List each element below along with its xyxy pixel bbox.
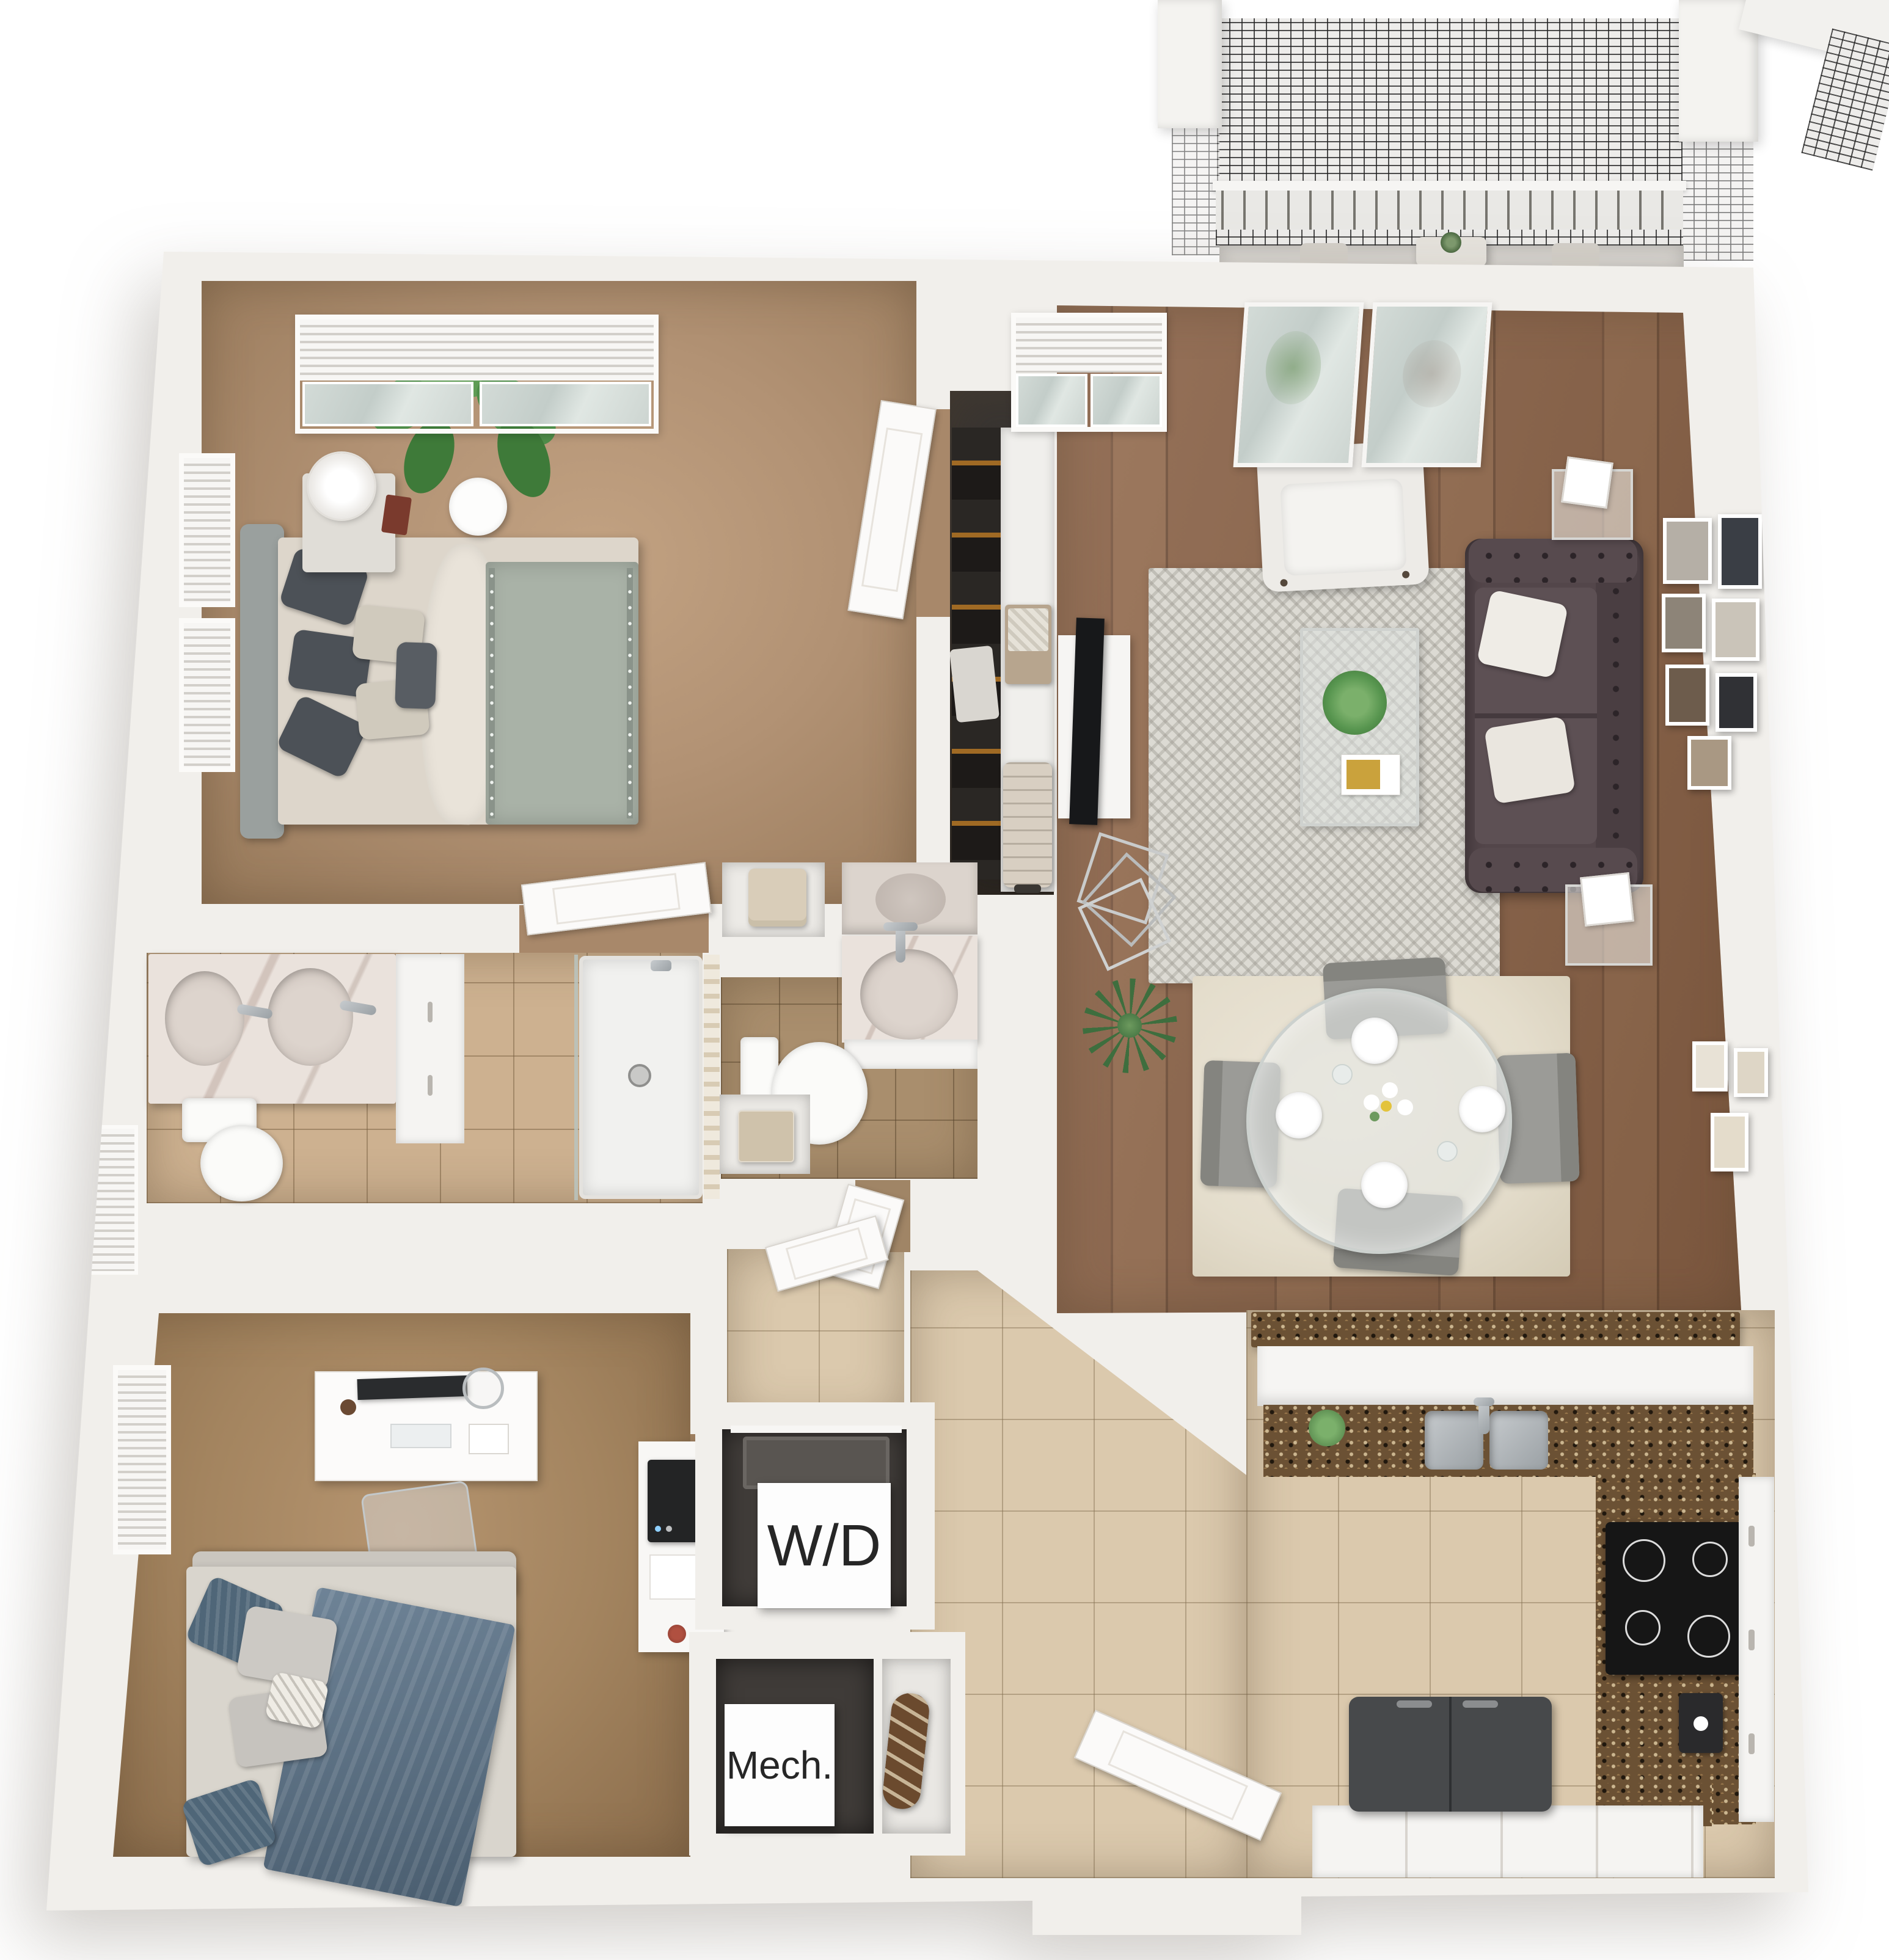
closet-shelf-lip xyxy=(731,1426,902,1433)
kitchen-sink-basin xyxy=(1489,1411,1548,1470)
printer-button xyxy=(666,1526,672,1532)
gallery-frame xyxy=(1663,518,1712,584)
coffee-maker xyxy=(1679,1693,1723,1753)
vanity2-cabinet xyxy=(844,1040,977,1069)
vanity-sink xyxy=(860,949,958,1040)
counter-plant xyxy=(1309,1410,1345,1446)
double-vanity xyxy=(148,954,396,1104)
gallery-frame xyxy=(1662,594,1706,652)
plant-pot xyxy=(449,478,507,536)
kitchen-faucet xyxy=(1478,1402,1489,1434)
cube-lamp xyxy=(1580,872,1634,927)
folded-towels xyxy=(748,869,806,927)
bedroom1-window-top xyxy=(295,315,659,434)
window-blinds xyxy=(1016,318,1162,373)
mirror-sink-reflection xyxy=(875,873,946,925)
window-pane xyxy=(1091,374,1162,427)
shower-curtain xyxy=(704,955,720,1199)
gallery-frame xyxy=(1687,736,1731,790)
drinking-glass xyxy=(0,1014,21,1035)
spiky-plant xyxy=(1083,978,1177,1073)
place-setting-plate xyxy=(1351,1018,1398,1064)
cabinet-handle xyxy=(428,1075,433,1096)
toilet-bowl xyxy=(200,1125,283,1201)
centerpiece-flowers xyxy=(1364,1082,1419,1128)
kitchen-faucet-head xyxy=(1474,1397,1494,1406)
gallery-frame xyxy=(1715,673,1757,732)
place-setting-plate xyxy=(1361,1162,1408,1208)
magazine xyxy=(1341,754,1400,795)
bathroom1-window xyxy=(84,1125,138,1275)
sliding-door-pane xyxy=(1233,302,1364,467)
gallery-frame xyxy=(1718,514,1762,589)
shower-drain xyxy=(628,1064,651,1087)
bed1-blanket xyxy=(486,562,638,825)
folded-cloth xyxy=(1008,608,1048,651)
chair-leg xyxy=(1280,579,1288,587)
fridge-door-split xyxy=(1449,1697,1452,1812)
sliding-door-pane xyxy=(1362,302,1493,467)
suitcase xyxy=(1003,762,1052,887)
desk xyxy=(315,1371,538,1481)
spiky-plant-center xyxy=(1117,1013,1142,1038)
drinking-glass xyxy=(1332,1064,1353,1085)
storage-box xyxy=(738,1110,794,1162)
peninsula-granite-back xyxy=(1251,1312,1740,1347)
glass-plant-reflection xyxy=(1263,331,1323,404)
magazine-art xyxy=(1346,760,1380,789)
kitchen-cabinets-right xyxy=(1739,1477,1774,1822)
kitchen-cabinets-bottom xyxy=(1312,1805,1703,1878)
keyboard xyxy=(390,1424,451,1448)
sofa-pillow xyxy=(1484,716,1576,804)
vanity2-counter xyxy=(842,936,977,1043)
cabinet-handle xyxy=(1748,1630,1755,1650)
bed1-blanket-stud-band xyxy=(489,568,495,818)
fridge-handle xyxy=(1463,1700,1498,1708)
drinking-glass xyxy=(1437,1141,1458,1162)
washer-dryer-machine-top xyxy=(743,1437,890,1489)
vanity-sink xyxy=(165,971,244,1066)
bed1-blanket-stud-band xyxy=(627,568,633,818)
range-stove xyxy=(1606,1522,1757,1675)
flower xyxy=(1397,1099,1413,1115)
wire-decor-stand xyxy=(1080,817,1172,958)
vanity-cabinet xyxy=(396,954,464,1143)
coffee-mug xyxy=(340,1399,356,1415)
burner xyxy=(1687,1615,1730,1658)
shower-head xyxy=(651,960,671,971)
monitor xyxy=(357,1375,467,1400)
coffee-table-plant xyxy=(1323,671,1387,735)
window-pane xyxy=(302,382,473,426)
fridge-handle xyxy=(1397,1700,1432,1708)
dining-wall-frame xyxy=(1692,1041,1728,1091)
gallery-frame xyxy=(1712,599,1759,661)
burner xyxy=(1692,1542,1728,1577)
shower-glass-panel xyxy=(574,955,578,1200)
sofa-pillow xyxy=(1477,589,1569,679)
flower xyxy=(1382,1082,1398,1098)
sofa-back-tufted xyxy=(1596,550,1640,880)
small-cactus xyxy=(668,1625,686,1643)
desk-lamp xyxy=(462,1368,504,1409)
notebook xyxy=(469,1424,509,1454)
bedroom2-window xyxy=(113,1365,171,1554)
bedroom1-window-left xyxy=(179,453,235,607)
sofa xyxy=(1465,539,1643,893)
glass-chair-reflection xyxy=(1400,340,1463,407)
burner xyxy=(1623,1539,1665,1582)
faucet-handle-bar xyxy=(883,922,918,931)
cabinet-handle xyxy=(1748,1733,1755,1754)
apartment-walls: W/D Mech. xyxy=(0,0,1889,1960)
mechanical-label: Mech. xyxy=(726,1743,833,1788)
apartment-shell-shadow: W/D Mech. xyxy=(0,0,1889,1960)
suitcase-handle xyxy=(1014,884,1041,893)
sliding-glass-door xyxy=(1233,302,1496,467)
living-window xyxy=(1011,313,1167,432)
armchair-cushion xyxy=(1280,478,1407,576)
flower xyxy=(1364,1095,1379,1110)
flower-leaf xyxy=(1370,1112,1379,1121)
floor-plan-render: W/D Mech. xyxy=(0,0,1889,1960)
gallery-frame xyxy=(1665,665,1709,726)
burner xyxy=(1625,1610,1661,1645)
chair-leg xyxy=(1402,570,1410,578)
peninsula-bar-front xyxy=(1257,1346,1753,1406)
faucet xyxy=(896,927,905,963)
cabinet-handle xyxy=(1748,1526,1755,1547)
cube-lamp xyxy=(1561,456,1613,509)
kitchen-sink-basin xyxy=(1425,1411,1483,1470)
window-blinds xyxy=(300,319,654,381)
table-lamp xyxy=(309,453,375,519)
window-pane xyxy=(480,382,651,426)
sofa-arm xyxy=(1469,539,1637,583)
vanity-sink xyxy=(268,968,353,1066)
bed1-lumbar-pillow xyxy=(395,642,437,709)
dining-wall-frame xyxy=(1734,1048,1768,1097)
coffee-cup xyxy=(1694,1716,1708,1731)
bedroom1-window-left xyxy=(179,618,235,772)
dining-wall-frame xyxy=(1711,1113,1748,1171)
refrigerator xyxy=(1349,1697,1552,1812)
washer-dryer-label: W/D xyxy=(767,1512,882,1579)
cabinet-handle xyxy=(428,1002,433,1022)
flower-center xyxy=(1381,1101,1392,1112)
mechanical-unit: Mech. xyxy=(725,1704,835,1826)
window-pane xyxy=(1016,374,1087,427)
chair-back xyxy=(1200,1060,1222,1186)
washer-dryer-unit: W/D xyxy=(758,1483,891,1608)
printer-button xyxy=(655,1526,661,1532)
closet-garment xyxy=(949,646,999,723)
place-setting-plate xyxy=(1459,1086,1505,1132)
place-setting-plate xyxy=(1276,1092,1322,1138)
